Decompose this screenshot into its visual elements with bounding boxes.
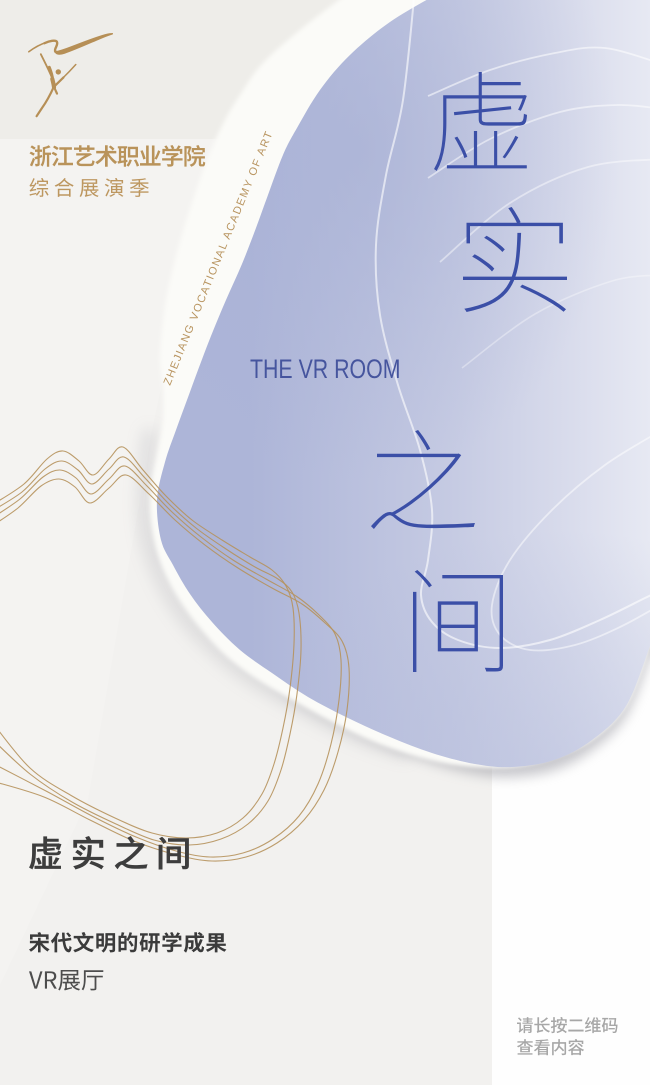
svg-text:THE VR ROOM: THE VR ROOM xyxy=(250,355,400,385)
